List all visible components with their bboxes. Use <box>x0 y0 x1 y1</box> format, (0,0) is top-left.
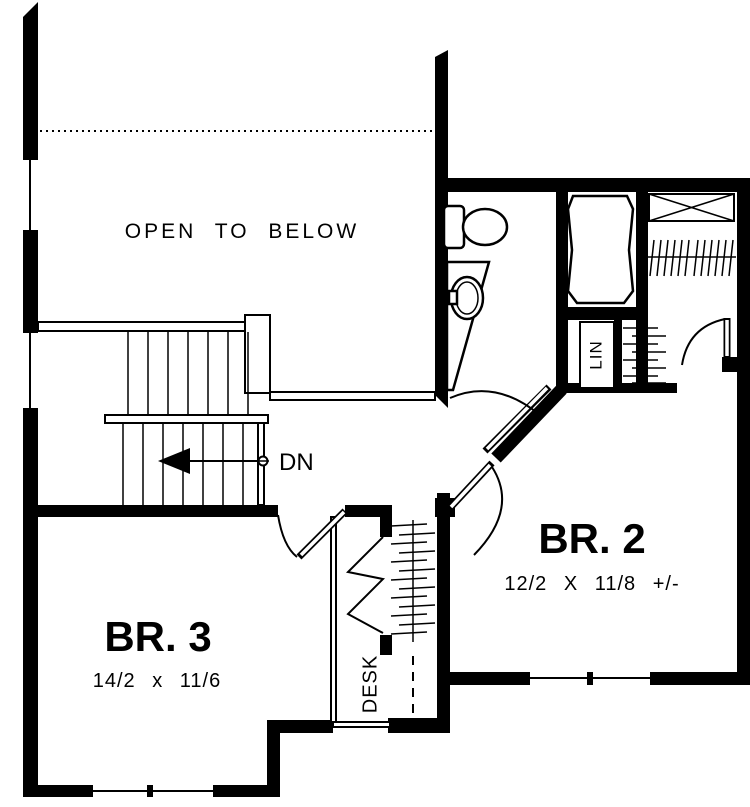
bedroom2-name: BR. 2 <box>538 515 645 562</box>
floor-plan-drawing: OPEN TO BELOW DN BR. 2 12/2 X 11/8 +/- B… <box>0 0 750 807</box>
sink-faucet <box>449 291 457 304</box>
open-to-below-label: OPEN TO BELOW <box>125 220 359 243</box>
closet-jamb-upper <box>380 517 392 537</box>
br3-step-wall-vertical <box>267 733 280 797</box>
stair-upper-treads <box>128 332 248 415</box>
bottom-window-mullion-br3 <box>147 785 153 797</box>
closet-top-wall <box>345 505 392 517</box>
closet-door-stub <box>722 357 737 372</box>
stair-down-arrow <box>158 448 269 474</box>
desk-front-edge <box>333 722 390 727</box>
toilet-tank <box>444 206 464 248</box>
stairs-dn-label: DN <box>279 449 314 476</box>
br3-door-arc <box>278 515 297 557</box>
shelf-stack <box>623 322 666 388</box>
below-tub-wall <box>556 307 648 320</box>
closet-hangers <box>650 240 733 276</box>
right-wall <box>737 178 750 685</box>
stair-mid-rail <box>105 415 268 423</box>
br3-step-wall-horizontal <box>267 720 333 733</box>
doors <box>278 318 727 557</box>
shower-tub <box>568 196 633 303</box>
desk-label: DESK <box>359 655 381 713</box>
shower-closet-wall <box>636 192 648 393</box>
diagonal-wall <box>496 389 562 458</box>
br3-closet-bifold-door <box>348 537 383 633</box>
left-wall-upper <box>23 2 38 160</box>
toilet-bowl <box>463 209 507 245</box>
br2-bottom-window-mullion <box>587 672 593 685</box>
hall-bottom-wall <box>23 505 278 517</box>
bedroom3-dimensions: 14/2 x 11/6 <box>93 670 221 692</box>
br2-bottom-wall-left <box>450 672 530 685</box>
left-wall-mid <box>23 230 38 333</box>
stairs <box>38 315 435 505</box>
left-wall-lower <box>23 408 38 797</box>
bedroom3-name: BR. 3 <box>104 613 211 660</box>
lin-divider-wall <box>614 320 622 385</box>
br2-west-wall <box>437 493 450 733</box>
closets <box>348 194 736 714</box>
hall-rail <box>270 392 435 400</box>
linen-closet-label: LIN <box>586 340 605 369</box>
bath-shower-wall <box>556 192 568 388</box>
stair-upper-rail <box>38 322 250 331</box>
br3-east-partition <box>331 517 336 722</box>
bottom-wall-left <box>38 785 93 797</box>
br2-bottom-wall-right <box>650 672 750 685</box>
closet-door-arc <box>682 319 725 365</box>
top-wall <box>435 178 750 192</box>
floor-plan: OPEN TO BELOW DN BR. 2 12/2 X 11/8 +/- B… <box>0 0 750 807</box>
closet-jamb-lower <box>380 635 392 655</box>
bedroom2-dimensions: 12/2 X 11/8 +/- <box>504 573 679 595</box>
